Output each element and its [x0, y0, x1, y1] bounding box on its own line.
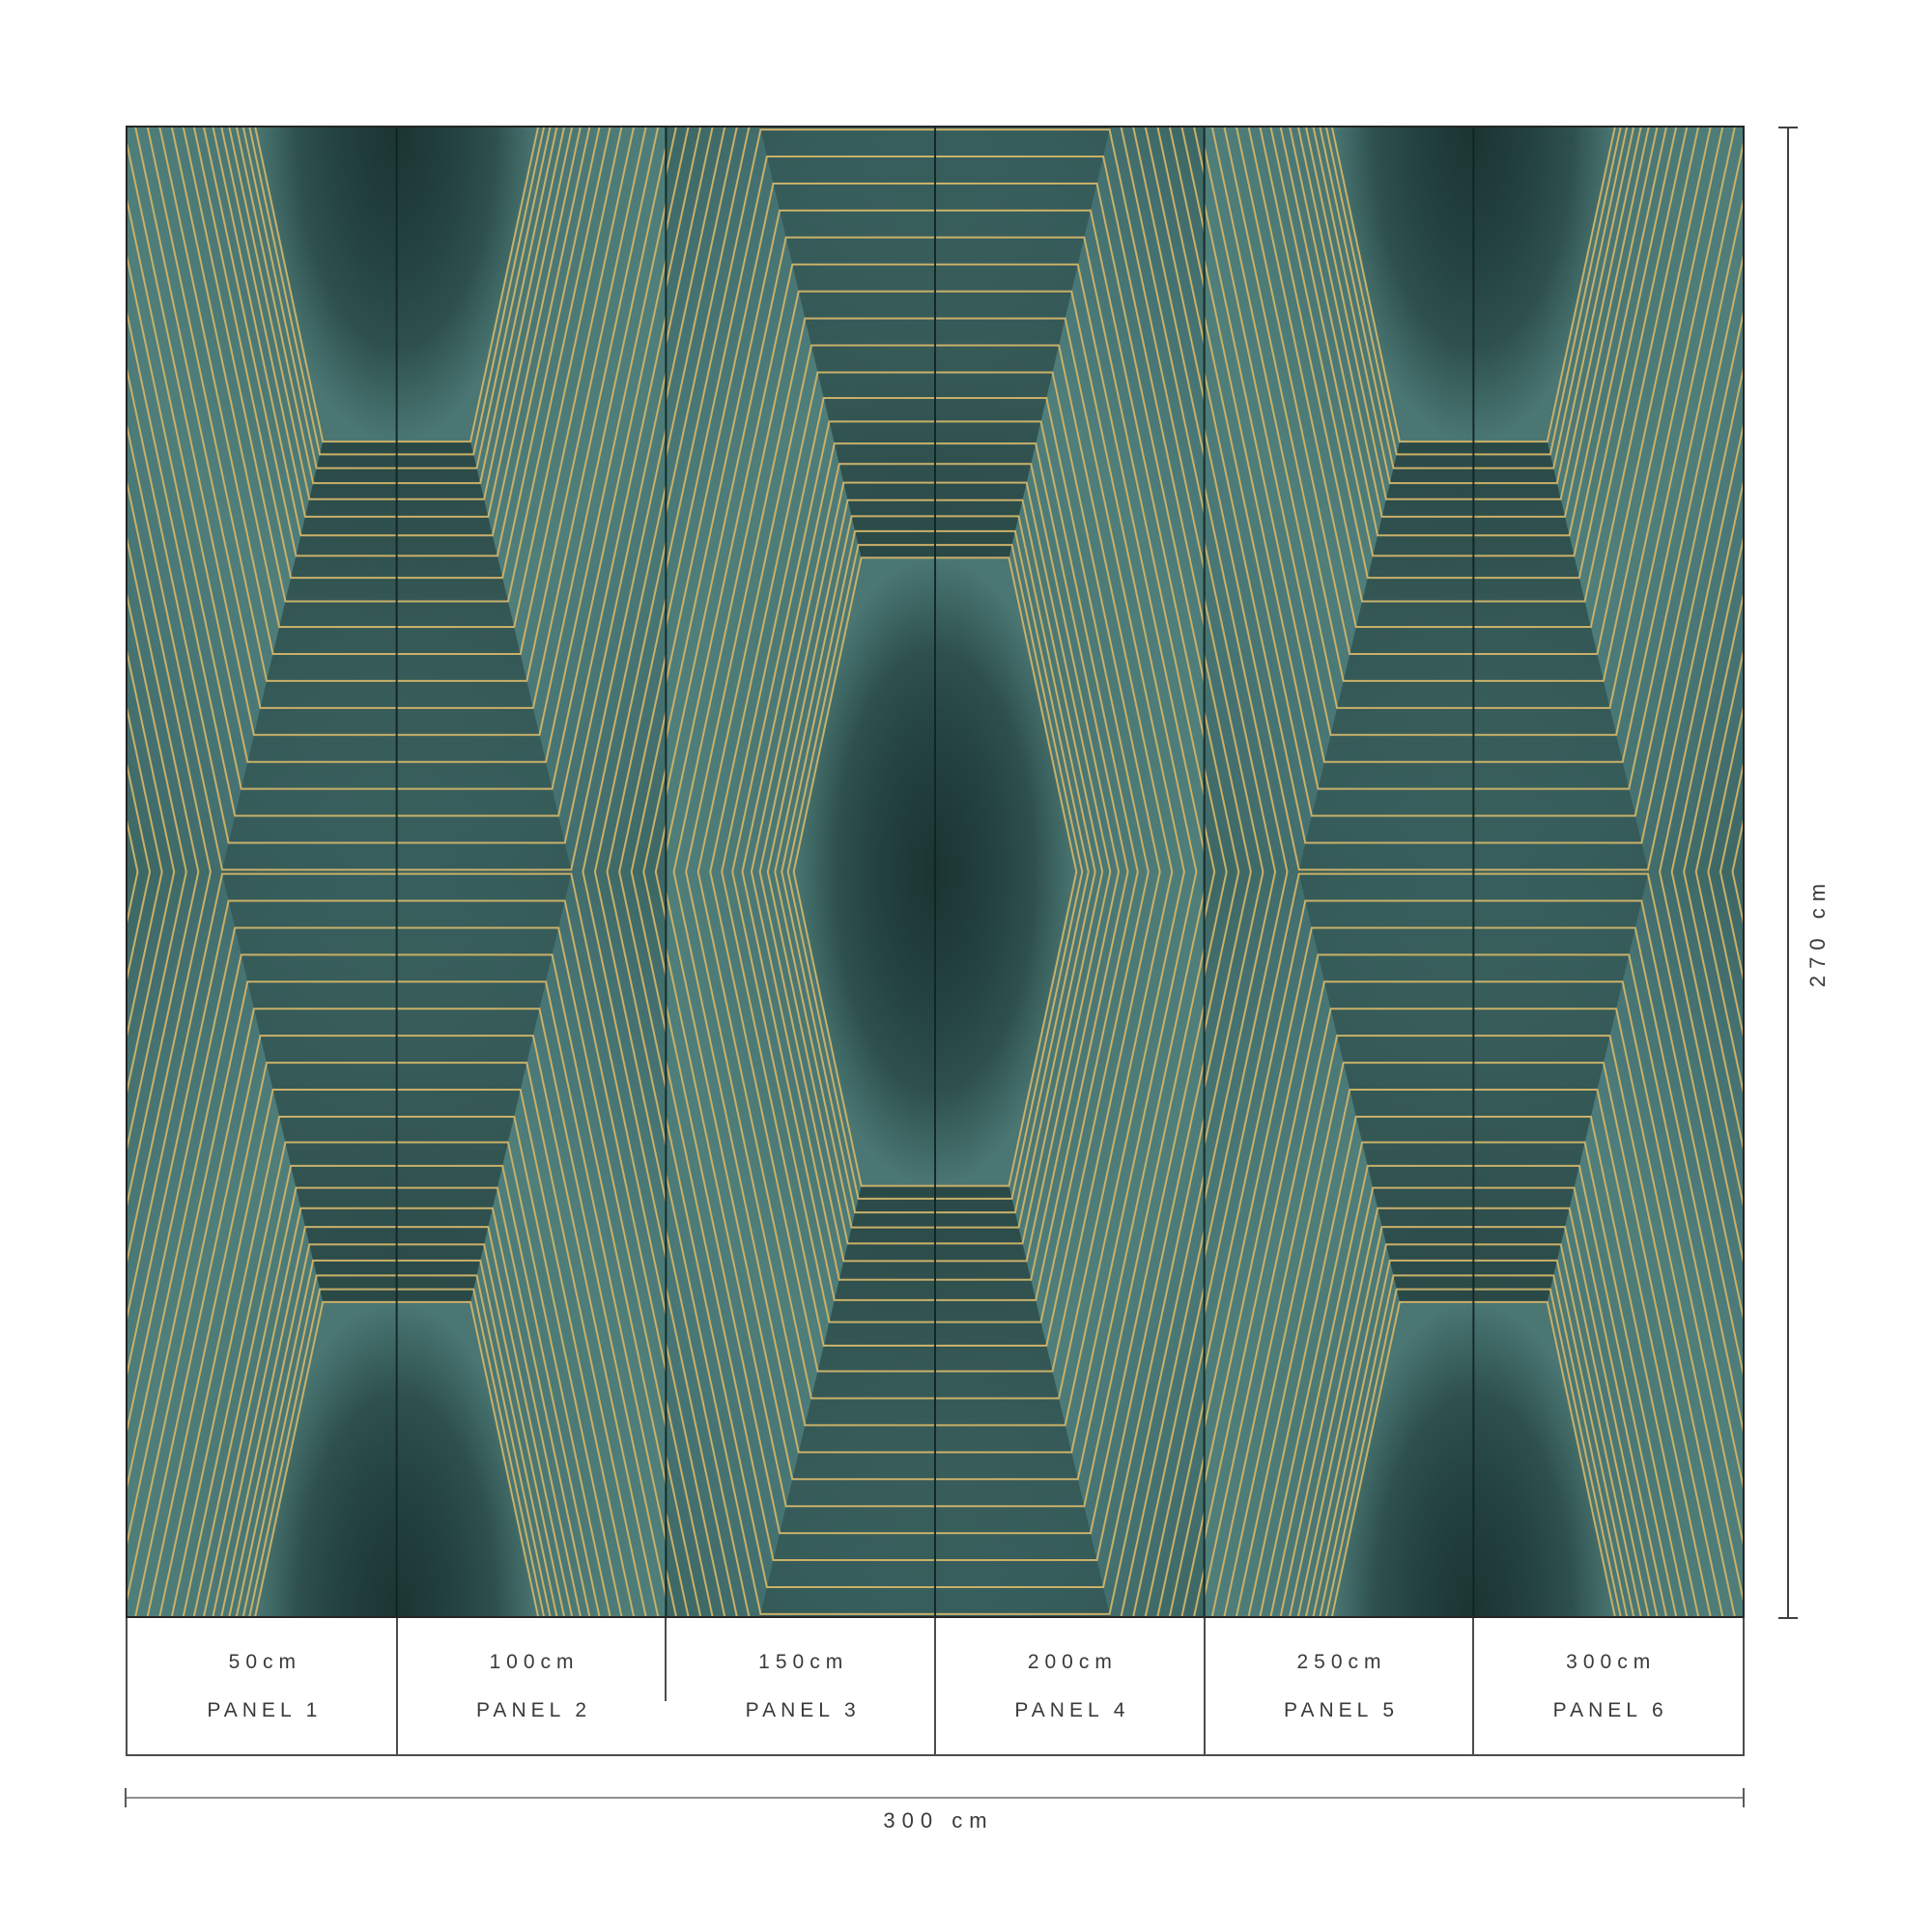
panel-size-label: 100cm: [483, 1651, 579, 1674]
panel-cell-6: 300cm PANEL 6: [1473, 1618, 1743, 1754]
strip-divider: [1204, 1618, 1206, 1754]
dimension-tick: [1778, 1617, 1798, 1619]
panel-cell-2: 100cm PANEL 2: [397, 1618, 667, 1754]
dimension-tick: [1778, 127, 1798, 128]
height-dimension-label: 270 cm: [1807, 865, 1829, 1000]
height-dimension-line: [1787, 128, 1789, 1619]
page: 50cm PANEL 1 100cm PANEL 2 150cm PANEL 3…: [0, 0, 1932, 1932]
panel-name-label: PANEL 2: [471, 1699, 591, 1722]
wallpaper-preview: [126, 126, 1745, 1618]
strip-divider: [396, 1618, 398, 1754]
strip-divider: [934, 1618, 936, 1754]
dimension-tick: [1743, 1788, 1745, 1807]
panel-cell-3: 150cm PANEL 3: [666, 1618, 935, 1754]
panel-name-label: PANEL 4: [1009, 1699, 1129, 1722]
panel-size-label: 50cm: [223, 1651, 301, 1674]
panel-size-label: 200cm: [1022, 1651, 1118, 1674]
panel-cell-4: 200cm PANEL 4: [935, 1618, 1205, 1754]
strip-divider: [665, 1618, 667, 1701]
strip-divider: [1472, 1618, 1474, 1754]
panel-name-label: PANEL 1: [202, 1699, 322, 1722]
dimension-tick: [125, 1788, 127, 1807]
wallpaper-pattern: [128, 128, 1743, 1616]
panel-size-label: 250cm: [1292, 1651, 1387, 1674]
panel-strip: 50cm PANEL 1 100cm PANEL 2 150cm PANEL 3…: [126, 1618, 1745, 1756]
panel-cell-1: 50cm PANEL 1: [128, 1618, 397, 1754]
panel-cell-5: 250cm PANEL 5: [1205, 1618, 1474, 1754]
panel-name-label: PANEL 6: [1548, 1699, 1668, 1722]
width-dimension-line: [126, 1797, 1745, 1799]
panel-name-label: PANEL 5: [1279, 1699, 1399, 1722]
panel-size-label: 300cm: [1560, 1651, 1656, 1674]
panel-name-label: PANEL 3: [741, 1699, 861, 1722]
width-dimension-label: 300 cm: [838, 1808, 1032, 1833]
panel-size-label: 150cm: [753, 1651, 848, 1674]
